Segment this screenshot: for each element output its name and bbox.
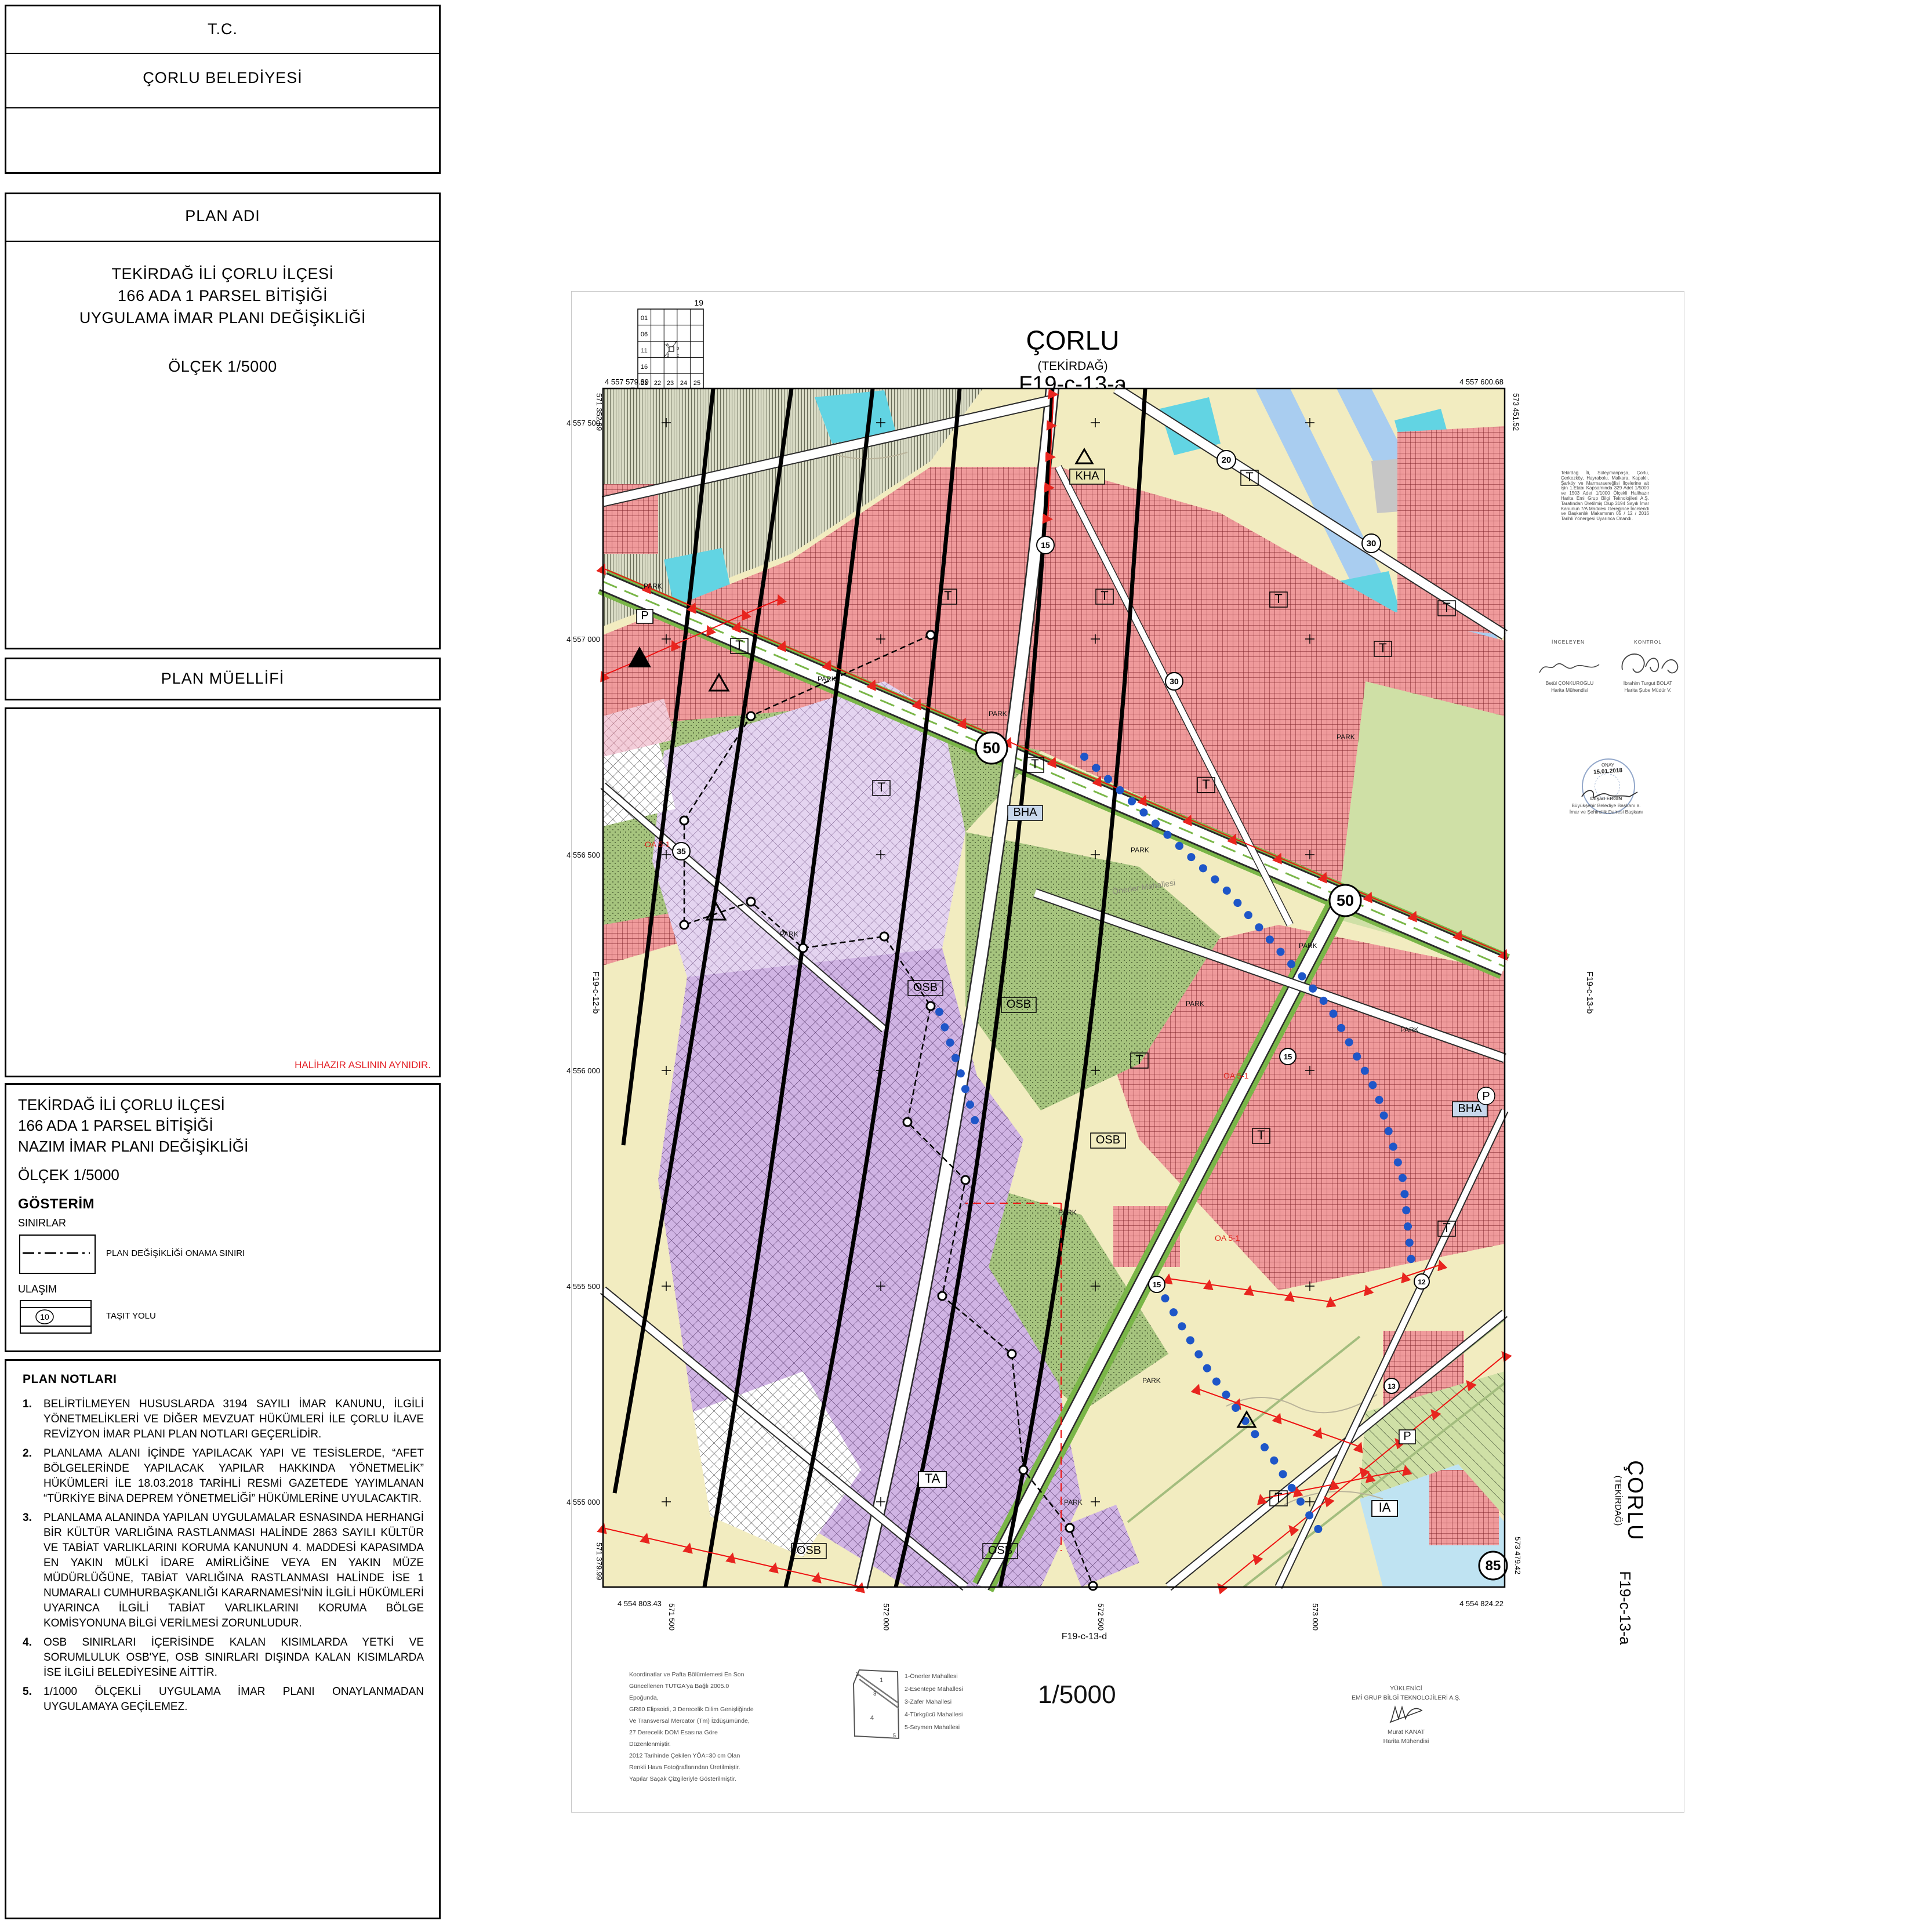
park-label: PARK bbox=[780, 930, 798, 938]
index-cell: 16 bbox=[641, 364, 648, 371]
park-label: PARK bbox=[1337, 733, 1355, 741]
margin-sheet-vertical: F19-c-13-a bbox=[1611, 1567, 1634, 1649]
grid-easting: 573 000 bbox=[1311, 1603, 1320, 1631]
plan-note-item: 4.OSB SINIRLARI İÇERİSİNDE KALAN KISIMLA… bbox=[23, 1635, 424, 1680]
road-number: 50 bbox=[983, 739, 1000, 757]
zone-label-bha: BHA bbox=[1013, 806, 1037, 819]
onay-title1: Büyükşehir Belediye Başkanı a. bbox=[1566, 803, 1647, 809]
margin-province: (TEKİRDAĞ) bbox=[1613, 1454, 1623, 1547]
index-sheet-number: 19 bbox=[694, 298, 703, 307]
plan-adi-title: TEKİRDAĞ İLİ ÇORLU İLÇESİ 166 ADA 1 PARS… bbox=[6, 263, 439, 329]
mahalle-item: 5-Seymen Mahallesi bbox=[905, 1721, 963, 1734]
zone-label-ia: IA bbox=[1379, 1500, 1391, 1515]
zone-label-p: P bbox=[1403, 1430, 1411, 1443]
road-number: 12 bbox=[1418, 1278, 1426, 1286]
plan-notlari-header: PLAN NOTLARI bbox=[23, 1373, 117, 1386]
map-title-city: ÇORLU bbox=[1026, 325, 1119, 355]
road-number: 20 bbox=[1222, 455, 1232, 465]
road-number: 15 bbox=[1284, 1052, 1292, 1061]
plan-adi-line1: TEKİRDAĞ İLİ ÇORLU İLÇESİ bbox=[6, 263, 439, 285]
nazim-line3: NAZIM İMAR PLANI DEĞİŞİKLİĞİ bbox=[18, 1136, 248, 1157]
yuklenici-firm: EMİ GRUP BİLGİ TEKNOLOJİLERİ A.Ş. bbox=[1351, 1693, 1461, 1702]
inceleyen-block: Betül ÇONKUROĞLU Harita Mühendisi bbox=[1535, 680, 1604, 694]
oa-code-label: OA 5-1 bbox=[645, 840, 670, 849]
mahalle-item: 3-Zafer Mahallesi bbox=[905, 1695, 963, 1708]
tc-label: T.C. bbox=[6, 20, 439, 38]
grid-northing: 4 555 500 bbox=[566, 1282, 600, 1291]
zone-label-t: T bbox=[1379, 641, 1386, 655]
onay-name: Dilşad ERGİN bbox=[1566, 796, 1647, 803]
note-number: 5. bbox=[23, 1684, 43, 1715]
note-text: BELİRTİLMEYEN HUSUSLARDA 3194 SAYILI İMA… bbox=[43, 1397, 424, 1442]
plan-adi-scale: ÖLÇEK 1/5000 bbox=[6, 355, 439, 377]
index-cell: 23 bbox=[667, 380, 674, 387]
park-label: PARK bbox=[1064, 1498, 1083, 1506]
park-label: PARK bbox=[1142, 1377, 1161, 1385]
divider bbox=[6, 53, 439, 54]
road-symbol-icon: 10 bbox=[19, 1299, 92, 1334]
onama-siniri-symbol bbox=[19, 1234, 96, 1274]
zone-label-t: T bbox=[1443, 600, 1450, 615]
nazim-legend-box: TEKİRDAĞ İLİ ÇORLU İLÇESİ 166 ADA 1 PARS… bbox=[5, 1083, 441, 1352]
dash-dot-line-icon bbox=[20, 1236, 92, 1270]
zone-label-t: T bbox=[877, 780, 885, 794]
oa-code-label: OA 5-1 bbox=[1215, 1233, 1240, 1243]
note-text: OSB SINIRLARI İÇERİSİNDE KALAN KISIMLARD… bbox=[43, 1635, 424, 1680]
oa-code-label: OA 5-1 bbox=[1223, 1071, 1249, 1080]
kontrol-signature bbox=[1617, 647, 1685, 681]
datum-note: Koordinatlar ve Pafta Bölümlemesi En Son… bbox=[629, 1669, 760, 1785]
road-number: 35 bbox=[677, 847, 686, 856]
road-number: 13 bbox=[1388, 1382, 1396, 1390]
index-cell: 11 bbox=[641, 347, 647, 354]
note-text: PLANLAMA ALANINDA YAPILAN UYGULAMALAR ES… bbox=[43, 1511, 424, 1631]
sketch-number: 5 bbox=[893, 1733, 896, 1738]
road-number: 15 bbox=[1153, 1280, 1161, 1289]
plan-adi-line3: UYGULAMA İMAR PLANI DEĞİŞİKLİĞİ bbox=[6, 307, 439, 329]
park-label: PARK bbox=[1131, 846, 1149, 854]
index-cell: 22 bbox=[654, 380, 661, 387]
grid-easting: 572 000 bbox=[882, 1603, 891, 1631]
grid-northing: 4 557 000 bbox=[566, 635, 600, 644]
zone-label-t: T bbox=[735, 638, 743, 652]
sketch-number: 2 bbox=[856, 1671, 859, 1677]
location-sketch: 1 2 3 4 5 bbox=[851, 1666, 902, 1743]
zone-label-t: T bbox=[1274, 1490, 1282, 1505]
map-scale-label: 1/5000 bbox=[1038, 1680, 1116, 1709]
note-text: 1/1000 ÖLÇEKLİ UYGULAMA İMAR PLANI ONAYL… bbox=[43, 1684, 424, 1715]
zone-label-osb: OSB bbox=[1007, 998, 1031, 1011]
index-quad: c bbox=[677, 353, 679, 358]
coord-label: 4 554 824.22 bbox=[1459, 1599, 1504, 1608]
kontrol-block: İbrahim Turgut BOLAT Harita Şube Müdür V… bbox=[1613, 680, 1683, 694]
yuklenici-block: YÜKLENİCİ EMİ GRUP BİLGİ TEKNOLOJİLERİ A… bbox=[1351, 1684, 1461, 1746]
sketch-number: 4 bbox=[870, 1715, 874, 1722]
index-quad: b bbox=[677, 346, 680, 351]
plan-notlari-list: 1.BELİRTİLMEYEN HUSUSLARDA 3194 SAYILI İ… bbox=[23, 1397, 424, 1719]
park-label: PARK bbox=[1400, 1026, 1419, 1034]
inceleyen-name: Betül ÇONKUROĞLU bbox=[1535, 680, 1604, 687]
park-label: PARK bbox=[1058, 1208, 1077, 1217]
zone-label-osb: OSB bbox=[988, 1544, 1012, 1557]
plan-note-item: 5.1/1000 ÖLÇEKLİ UYGULAMA İMAR PLANI ONA… bbox=[23, 1684, 424, 1715]
onama-siniri-label: PLAN DEĞİŞİKLİĞİ ONAMA SINIRI bbox=[106, 1248, 245, 1258]
tasit-yolu-symbol: 10 bbox=[19, 1299, 92, 1334]
zone-label-t: T bbox=[944, 589, 952, 603]
divider bbox=[6, 107, 439, 108]
index-cell: 01 bbox=[641, 315, 648, 322]
note-number: 3. bbox=[23, 1511, 43, 1631]
index-quad: d bbox=[667, 353, 669, 358]
coord-label: 4 557 600.68 bbox=[1459, 377, 1504, 386]
park-label: PARK bbox=[1299, 942, 1317, 950]
zone-label-t: T bbox=[1274, 591, 1282, 606]
park-label: PARK bbox=[989, 710, 1007, 718]
index-cell: 25 bbox=[693, 380, 700, 387]
margin-city: ÇORLU bbox=[1623, 1454, 1647, 1547]
coord-label: 571 379.99 bbox=[595, 1542, 604, 1580]
divider bbox=[6, 241, 439, 242]
road-number: 50 bbox=[1337, 892, 1354, 909]
sinirlar-header: SINIRLAR bbox=[18, 1217, 66, 1229]
park-label: PARK bbox=[1186, 1000, 1204, 1008]
mahalle-list: 1-Önerler Mahallesi 2-Esentepe Mahallesi… bbox=[905, 1670, 963, 1734]
kontrol-name: İbrahim Turgut BOLAT bbox=[1613, 680, 1683, 687]
zone-label-t: T bbox=[1257, 1128, 1265, 1142]
park-label: PARK bbox=[818, 675, 836, 683]
zone-label-t: T bbox=[1202, 777, 1210, 791]
zoning-map: ÇORLU (TEKİRDAĞ) F19-c-13-a F19-c-08-d 1… bbox=[560, 275, 1603, 1679]
zone-label-t: T bbox=[1101, 589, 1108, 603]
halihazir-note: HALİHAZIR ASLININ AYNIDIR. bbox=[295, 1059, 431, 1071]
yuklenici-name: Murat KANAT bbox=[1351, 1727, 1461, 1737]
zone-label-t: T bbox=[1443, 1221, 1450, 1235]
index-cell: 06 bbox=[641, 331, 648, 338]
zone-label-t: T bbox=[1245, 470, 1253, 484]
index-cell: 24 bbox=[680, 380, 687, 387]
sketch-number: 1 bbox=[880, 1677, 883, 1684]
mahalle-item: 2-Esentepe Mahallesi bbox=[905, 1683, 963, 1695]
grid-northing: 4 557 500 bbox=[566, 419, 600, 427]
titleblock-header-box: T.C. ÇORLU BELEDİYESİ bbox=[5, 5, 441, 174]
zone-label-t: T bbox=[1031, 757, 1038, 771]
yuklenici-label: YÜKLENİCİ bbox=[1351, 1684, 1461, 1693]
margin-city-vertical: ÇORLU (TEKİRDAĞ) bbox=[1584, 1454, 1647, 1547]
plan-sheet-page: T.C. ÇORLU BELEDİYESİ PLAN ADI TEKİRDAĞ … bbox=[0, 0, 1932, 1928]
plan-notlari-box: PLAN NOTLARI 1.BELİRTİLMEYEN HUSUSLARDA … bbox=[5, 1359, 441, 1919]
tasit-yolu-number: 10 bbox=[40, 1312, 49, 1321]
inceleyen-signature bbox=[1537, 654, 1603, 680]
plan-muellifi-box: PLAN MÜELLİFİ bbox=[5, 658, 441, 700]
nazim-title: TEKİRDAĞ İLİ ÇORLU İLÇESİ 166 ADA 1 PARS… bbox=[18, 1094, 248, 1157]
onay-block: Dilşad ERGİN Büyükşehir Belediye Başkanı… bbox=[1566, 796, 1647, 816]
zone-label-p: P bbox=[641, 609, 648, 622]
road-number: 30 bbox=[1170, 677, 1179, 686]
inceleyen-label: İNCELEYEN bbox=[1552, 639, 1585, 645]
park-label: PARK bbox=[644, 582, 662, 590]
adjacent-sheet-left: F19-c-12-b bbox=[591, 971, 601, 1014]
grid-northing: 4 556 500 bbox=[566, 851, 600, 859]
road-number: 30 bbox=[1367, 539, 1377, 549]
map-title-province: (TEKİRDAĞ) bbox=[1037, 360, 1107, 373]
grid-northing: 4 555 000 bbox=[566, 1498, 600, 1506]
ulasim-header: ULAŞIM bbox=[18, 1283, 57, 1295]
adjacent-sheet-right: F19-c-13-b bbox=[1585, 971, 1595, 1014]
zone-label-kha: KHA bbox=[1075, 470, 1099, 482]
nazim-line1: TEKİRDAĞ İLİ ÇORLU İLÇESİ bbox=[18, 1094, 248, 1115]
plan-adi-header: PLAN ADI bbox=[6, 207, 439, 225]
index-quad: a bbox=[666, 342, 669, 347]
plan-muellifi-content-box: HALİHAZIR ASLININ AYNIDIR. bbox=[5, 707, 441, 1077]
plan-adi-line2: 166 ADA 1 PARSEL BİTİŞİĞİ bbox=[6, 285, 439, 307]
yuklenici-title: Harita Mühendisi bbox=[1351, 1737, 1461, 1746]
plan-note-item: 3.PLANLAMA ALANINDA YAPILAN UYGULAMALAR … bbox=[23, 1511, 424, 1631]
zone-label-osb: OSB bbox=[1096, 1134, 1120, 1146]
coord-label: 4 557 579.89 bbox=[605, 377, 649, 386]
mahalle-item: 4-Türkgücü Mahallesi bbox=[905, 1708, 963, 1721]
note-number: 1. bbox=[23, 1397, 43, 1442]
zone-label-bha: BHA bbox=[1458, 1102, 1482, 1115]
plan-adi-box: PLAN ADI TEKİRDAĞ İLİ ÇORLU İLÇESİ 166 A… bbox=[5, 193, 441, 649]
approval-paragraph: Tekirdağ İli, Süleymanpaşa, Çorlu, Çerke… bbox=[1561, 471, 1649, 522]
tasit-yolu-label: TAŞIT YOLU bbox=[106, 1311, 156, 1321]
sketch-number: 3 bbox=[873, 1691, 877, 1697]
coord-label: 4 554 803.43 bbox=[618, 1599, 662, 1608]
onay-title2: İmar ve Şehircilik Dairesi Başkanı bbox=[1566, 809, 1647, 816]
note-number: 2. bbox=[23, 1446, 43, 1506]
zone-label-t: T bbox=[1135, 1052, 1143, 1067]
plan-note-item: 2.PLANLAMA ALANI İÇİNDE YAPILACAK YAPI V… bbox=[23, 1446, 424, 1506]
map-content: 20 30 15 30 50 50 35 15 15 12 13 85 T T … bbox=[603, 388, 1507, 1590]
grid-northing: 4 556 000 bbox=[566, 1066, 600, 1075]
zone-label-osb: OSB bbox=[913, 981, 938, 994]
zone-label-p: P bbox=[1482, 1090, 1490, 1103]
yuklenici-signature bbox=[1386, 1702, 1426, 1724]
plan-muellifi-header: PLAN MÜELLİFİ bbox=[6, 670, 439, 688]
coord-label: 573 451.52 bbox=[1512, 393, 1520, 431]
road-number: 85 bbox=[1486, 1558, 1501, 1574]
zone-label-osb: OSB bbox=[797, 1544, 821, 1557]
nazim-line2: 166 ADA 1 PARSEL BİTİŞİĞİ bbox=[18, 1115, 248, 1136]
plan-note-item: 1.BELİRTİLMEYEN HUSUSLARDA 3194 SAYILI İ… bbox=[23, 1397, 424, 1442]
inceleyen-title: Harita Mühendisi bbox=[1535, 687, 1604, 694]
grid-easting: 572 500 bbox=[1096, 1603, 1105, 1631]
zone-label-ta: TA bbox=[925, 1471, 940, 1486]
kontrol-label: KONTROL bbox=[1634, 639, 1662, 645]
road-number: 15 bbox=[1041, 540, 1050, 550]
nazim-scale: ÖLÇEK 1/5000 bbox=[18, 1166, 119, 1184]
grid-easting: 571 500 bbox=[667, 1603, 676, 1631]
coord-label: 573 479.42 bbox=[1513, 1537, 1522, 1574]
municipality-label: ÇORLU BELEDİYESİ bbox=[6, 69, 439, 87]
note-text: PLANLAMA ALANI İÇİNDE YAPILACAK YAPI VE … bbox=[43, 1446, 424, 1506]
mahalle-item: 1-Önerler Mahallesi bbox=[905, 1670, 963, 1683]
note-number: 4. bbox=[23, 1635, 43, 1680]
adjacent-sheet-bottom: F19-c-13-d bbox=[1062, 1632, 1107, 1642]
gosterim-header: GÖSTERİM bbox=[18, 1196, 95, 1212]
kontrol-title: Harita Şube Müdür V. bbox=[1613, 687, 1683, 694]
